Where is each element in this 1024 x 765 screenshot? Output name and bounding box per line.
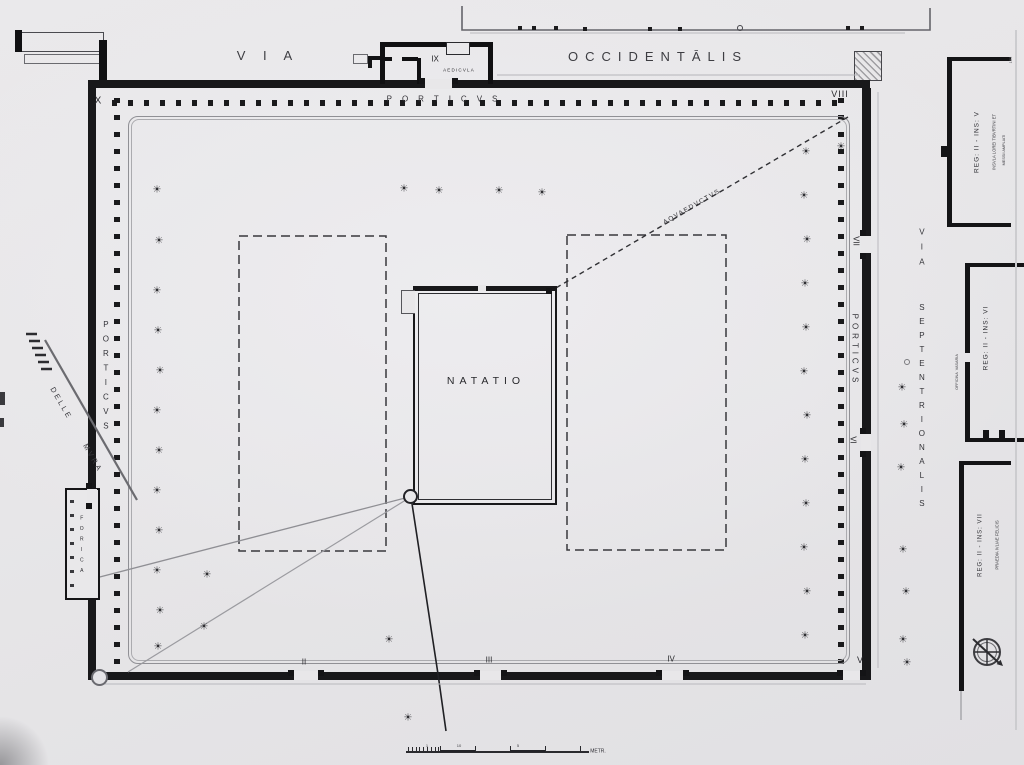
forica-seat-marks <box>70 500 74 588</box>
tree-symbol: ☀ <box>800 543 809 554</box>
scale-bar <box>406 751 589 753</box>
scale-fine-tick <box>419 747 420 751</box>
gatehouse-wall-mid-a <box>380 57 392 61</box>
gate-iii-label: III <box>486 657 493 666</box>
tree-symbol: ☀ <box>153 286 162 297</box>
north-arrow-compass <box>973 639 1003 666</box>
porticus-east-label: PORTICVS <box>850 314 859 387</box>
street-feature-ring <box>905 360 910 365</box>
tree-symbol: ☀ <box>802 499 811 510</box>
insula-vi-pier-a <box>983 430 989 439</box>
plate-number: 183 <box>1009 57 1013 64</box>
tree-symbol: ☀ <box>404 713 413 724</box>
tree-symbol: ☀ <box>903 658 912 669</box>
forica-door-jamb <box>86 483 92 489</box>
street-pier <box>846 26 850 30</box>
tree-symbol: ☀ <box>898 383 907 394</box>
tree-symbol: ☀ <box>153 566 162 577</box>
corner-x-label: X <box>95 96 102 107</box>
gate-ix-jamb <box>452 78 458 84</box>
natatio-aqueduct-inlet <box>546 288 552 294</box>
tree-symbol: ☀ <box>203 570 212 581</box>
scale-bar-segment <box>510 750 545 753</box>
gatehouse-wall-west <box>380 44 385 84</box>
water-channel-southwest <box>128 498 409 672</box>
excavation-outline-east <box>567 235 726 550</box>
scale-number-1: 1 <box>426 744 428 748</box>
gate-vii-label: VII <box>851 236 860 246</box>
gate-ii-jamb <box>318 670 324 676</box>
gate-vi-jamb <box>860 451 866 457</box>
tree-symbol: ☀ <box>153 185 162 196</box>
gate-v <box>843 671 860 680</box>
street-pier <box>554 26 558 30</box>
natatio-pool-inner-wall <box>418 293 552 500</box>
gate-iii-jamb <box>501 670 507 676</box>
tree-symbol: ☀ <box>837 142 846 153</box>
gate-ii <box>294 671 318 680</box>
city-wall-line <box>45 340 137 500</box>
natatio-label: NATATIO <box>447 376 525 388</box>
corner-viii-label: VIII <box>831 90 849 100</box>
edge-artifact <box>0 392 5 405</box>
tree-symbol: ☀ <box>435 186 444 197</box>
tree-symbol: ☀ <box>801 455 810 466</box>
scale-major-tick <box>475 746 476 752</box>
tree-symbol: ☀ <box>801 631 810 642</box>
gate-iii <box>480 671 501 680</box>
scanned-plan-page: ☀☀☀☀☀☀☀☀☀☀☀☀☀☀☀☀☀☀☀☀☀☀☀☀☀☀☀☀☀☀☀☀☀☀☀☀☀☀☀☀… <box>0 0 1024 765</box>
insula-v-door-pier <box>941 146 948 157</box>
natatio-north-opening <box>478 285 486 291</box>
tree-symbol: ☀ <box>803 235 812 246</box>
gate-vii <box>861 236 871 253</box>
scale-number-5: 5 <box>517 744 519 748</box>
gate-iii-jamb <box>474 670 480 676</box>
tree-symbol: ☀ <box>200 622 209 633</box>
forica-door <box>87 489 97 503</box>
gate-v-jamb <box>837 670 843 676</box>
porticus-north-label: PORTICVS <box>387 96 508 105</box>
tree-symbol: ☀ <box>802 147 811 158</box>
street-pier <box>583 27 587 31</box>
scale-number-10: 10 <box>457 744 461 748</box>
page-edge-line <box>1015 30 1017 730</box>
scale-unit-label: METR. <box>590 749 606 755</box>
gate-ix-jamb <box>419 78 425 84</box>
gate-ix-label: IX <box>431 56 439 65</box>
southwest-corner-cistern <box>91 669 108 686</box>
aedicula-label: AEDICVLA <box>443 69 475 74</box>
forica-door-jamb <box>86 503 92 509</box>
tree-symbol: ☀ <box>899 635 908 646</box>
gate-ix <box>425 79 452 89</box>
street-pier <box>532 26 536 30</box>
scale-fine-tick <box>412 747 413 751</box>
tree-symbol: ☀ <box>385 635 394 646</box>
street-pier <box>518 26 522 30</box>
gate-iv-jamb <box>683 670 689 676</box>
gatehouse-wall-east <box>488 44 493 84</box>
tree-symbol: ☀ <box>802 323 811 334</box>
tree-symbol: ☀ <box>155 446 164 457</box>
insula-v-wall <box>947 57 952 227</box>
street-label-via-west: V I A <box>237 49 299 63</box>
tree-symbol: ☀ <box>155 236 164 247</box>
tree-symbol: ☀ <box>538 188 547 199</box>
street-label-occidentalis: OCCIDENTĀLIS <box>568 50 748 64</box>
reg-ii-ins-vi-label: REG: II - INS: VI <box>982 306 989 371</box>
gate-iv <box>662 671 683 680</box>
gate-ii-label: II <box>302 659 306 668</box>
scale-bar-segment <box>440 750 475 753</box>
tree-symbol: ☀ <box>900 420 909 431</box>
insula-v-wall-bottom <box>947 223 1011 227</box>
insula-lorei-label: INSVLA LOREI TIBVRTINI ET <box>993 114 998 170</box>
gate-iv-jamb <box>656 670 662 676</box>
gate-vi-label: VI <box>848 436 857 444</box>
tree-symbol: ☀ <box>801 279 810 290</box>
tree-symbol: ☀ <box>155 526 164 537</box>
scale-fine-tick <box>423 747 424 751</box>
insula-v-wall-top <box>947 57 1011 61</box>
tree-symbol: ☀ <box>153 406 162 417</box>
wall-hatch-marks <box>26 334 52 369</box>
street-pier <box>648 27 652 31</box>
forica-label: FORICA <box>78 516 84 579</box>
scale-fine-tick <box>431 747 432 751</box>
reg-ii-ins-v-label: REG: II - INS: V <box>973 111 980 173</box>
gate-iv-label: IV <box>667 656 675 665</box>
gate-v-jamb <box>860 670 866 676</box>
street-label-septentrionalis: SEPTENTRIONALIS <box>917 303 926 513</box>
tree-symbol: ☀ <box>156 366 165 377</box>
gate-vii-jamb <box>860 253 866 259</box>
scale-major-tick <box>580 746 581 752</box>
edge-artifact <box>0 418 4 427</box>
tree-symbol: ☀ <box>400 184 409 195</box>
water-channel-to-forica <box>92 497 409 579</box>
tree-symbol: ☀ <box>154 642 163 653</box>
porticus-west-label: PORTICVS <box>101 320 110 436</box>
scale-fine-tick <box>435 747 436 751</box>
praedia-iuliae-label: PRAEDIA IVLIAE FELICIS <box>996 520 1001 569</box>
aedicula-shrine <box>446 42 470 55</box>
tree-symbol: ☀ <box>153 486 162 497</box>
scale-fine-tick <box>408 747 409 751</box>
tree-symbol: ☀ <box>902 587 911 598</box>
street-label-via-north: VIA <box>917 228 926 273</box>
tree-symbol: ☀ <box>800 191 809 202</box>
reg-ii-ins-vii-label: REG: II - INS: VII <box>978 513 985 577</box>
gate-ii-jamb <box>288 670 294 676</box>
insula-vi-wall-a <box>965 263 970 353</box>
scale-fine-tick <box>416 747 417 751</box>
insula-vi-pier-b <box>999 430 1005 439</box>
scan-shadow <box>0 700 70 765</box>
tree-symbol: ☀ <box>803 587 812 598</box>
tree-symbol: ☀ <box>156 606 165 617</box>
tree-symbol: ☀ <box>495 186 504 197</box>
excavation-outline-west <box>239 236 386 551</box>
tree-symbol: ☀ <box>897 463 906 474</box>
insula-vii-wall-top <box>959 461 1011 465</box>
tree-symbol: ☀ <box>899 545 908 556</box>
messii-ampliati-label: MESSII AMPLIATI <box>1002 135 1006 166</box>
scale-major-tick <box>545 746 546 752</box>
insula-vi-wall-b <box>965 362 970 442</box>
gatehouse-wall-mid-b <box>402 57 418 61</box>
drain-channel-south <box>411 497 446 731</box>
gatehouse-wall-north <box>380 42 493 47</box>
natatio-pool <box>413 286 557 505</box>
street-pier <box>860 26 864 30</box>
natatio-corner-basin <box>401 290 415 314</box>
officina-vasaria-label: OFFICINA VASARIA <box>955 354 959 390</box>
insula-vii-wall <box>959 461 964 691</box>
street-pier <box>678 27 682 31</box>
gate-vi <box>861 434 871 451</box>
tree-symbol: ☀ <box>154 326 163 337</box>
natatio-drain-basin <box>403 489 418 504</box>
gate-v-label: V <box>857 656 863 666</box>
gate-vi-jamb <box>860 428 866 434</box>
tree-symbol: ☀ <box>800 367 809 378</box>
tree-symbol: ☀ <box>803 411 812 422</box>
gate-vii-jamb <box>860 230 866 236</box>
